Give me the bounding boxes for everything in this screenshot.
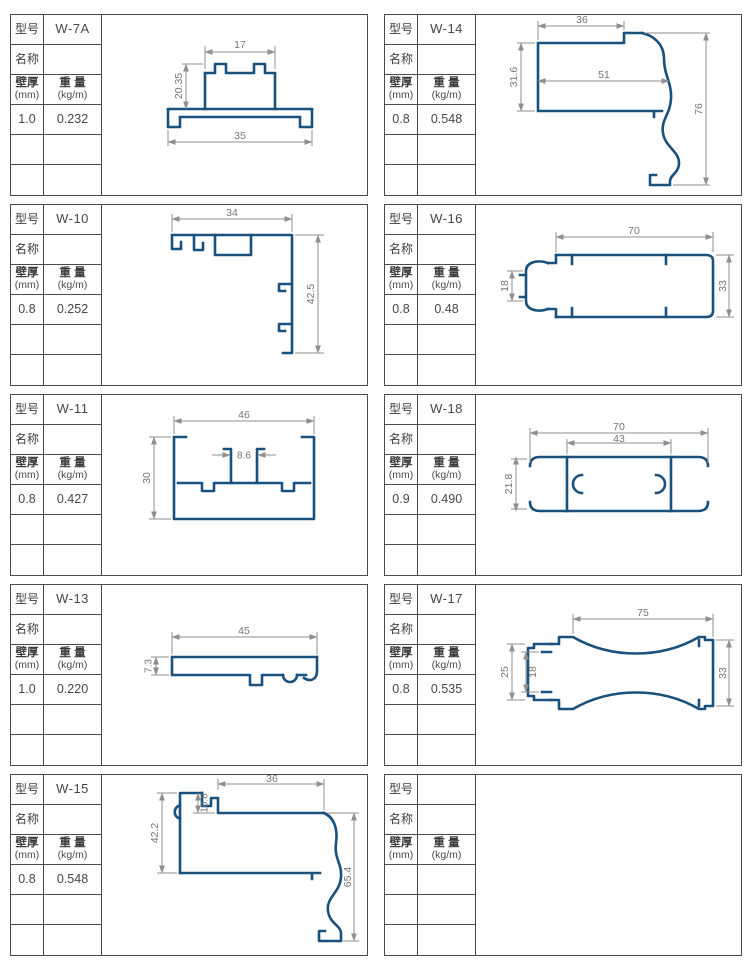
empty-cell [418, 735, 475, 765]
dimension-label: 33 [717, 280, 729, 292]
name-label: 名称 [385, 235, 418, 265]
name-value [418, 425, 475, 455]
model-label: 型号 [385, 395, 418, 425]
empty-cell [385, 705, 418, 735]
profile-drawing-w10: 34 42.5 [102, 205, 366, 385]
profile-outline [520, 261, 548, 310]
weight-header: 重 量(kg/m) [418, 835, 475, 865]
dimension-label: 34 [226, 207, 238, 219]
empty-cell [418, 705, 475, 735]
profile-outline [194, 235, 251, 255]
model-value: W-15 [44, 775, 101, 805]
thickness-header: 壁厚(mm) [385, 265, 418, 295]
profile-outline [283, 675, 297, 682]
thickness-unit: (mm) [15, 470, 40, 482]
profile-outline [319, 813, 341, 941]
profile-card-w7a: 型号 W-7A 名称 壁厚(mm) 重 量(kg/m) 1.0 0.232 17… [10, 14, 368, 196]
drawing-area: 70 43 21.8 [476, 395, 741, 575]
empty-cell [44, 735, 101, 765]
empty-cell [385, 925, 418, 955]
weight-value: 0.548 [418, 105, 475, 135]
empty-cell [11, 705, 44, 735]
weight-value: 0.220 [44, 675, 101, 705]
model-value: W-18 [418, 395, 475, 425]
name-label: 名称 [385, 45, 418, 75]
dimension-label: 42.5 [305, 284, 317, 305]
profile-outline [573, 475, 665, 493]
model-label: 型号 [11, 585, 44, 615]
profile-outline [279, 284, 292, 331]
empty-cell [11, 135, 44, 165]
dimension-label: 36 [266, 775, 278, 785]
profile-outline [202, 793, 324, 813]
spec-table: 型号 W-10 名称 壁厚(mm) 重 量(kg/m) 0.8 0.252 [11, 205, 102, 385]
spec-table: 型号 W-11 名称 壁厚(mm) 重 量(kg/m) 0.8 0.427 [11, 395, 102, 575]
dimension-label: 76 [693, 103, 705, 115]
model-label: 型号 [385, 15, 418, 45]
empty-cell [385, 735, 418, 765]
profile-drawing-w11: 46 8.6 30 [102, 395, 366, 575]
empty-cell [44, 705, 101, 735]
profile-card-w11: 型号 W-11 名称 壁厚(mm) 重 量(kg/m) 0.8 0.427 46 [10, 394, 368, 576]
thickness-value: 0.9 [385, 485, 418, 515]
empty-cell [44, 325, 101, 355]
thickness-header: 壁厚(mm) [385, 75, 418, 105]
name-label: 名称 [11, 615, 44, 645]
thickness-header: 壁厚(mm) [11, 645, 44, 675]
spec-table: 型号 W-18 名称 壁厚(mm) 重 量(kg/m) 0.9 0.490 [385, 395, 476, 575]
model-value: W-17 [418, 585, 475, 615]
model-label: 型号 [385, 205, 418, 235]
dimension-label: 31.6 [508, 67, 520, 88]
dimension-label: 33 [717, 667, 729, 679]
weight-header: 重 量(kg/m) [44, 455, 101, 485]
name-label: 名称 [11, 45, 44, 75]
profile-drawing-w14: 36 51 31.6 76 [476, 15, 740, 195]
weight-unit: (kg/m) [432, 280, 462, 292]
profile-outline [551, 637, 713, 709]
thickness-value: 0.8 [385, 105, 418, 135]
dimension-label: 51 [598, 69, 610, 81]
name-label: 名称 [11, 425, 44, 455]
empty-cell [11, 735, 44, 765]
empty-cell [418, 135, 475, 165]
profile-outline [205, 64, 275, 109]
spec-table: 型号 W-14 名称 壁厚(mm) 重 量(kg/m) 0.8 0.548 [385, 15, 476, 195]
profile-outline [542, 640, 699, 706]
dimension-label: 18 [499, 280, 511, 292]
dimension-label: 75 [637, 607, 649, 619]
spec-table: 型号 W-17 名称 壁厚(mm) 重 量(kg/m) 0.8 0.535 [385, 585, 476, 765]
dimension-label: 65.4 [342, 867, 354, 888]
dimension-label: 21.8 [503, 474, 515, 495]
weight-unit: (kg/m) [58, 470, 88, 482]
profile-outline [567, 457, 671, 511]
name-label: 名称 [11, 235, 44, 265]
dimension-label: 35 [234, 130, 246, 142]
thickness-header: 壁厚(mm) [385, 835, 418, 865]
thickness-unit: (mm) [15, 850, 40, 862]
drawing-area: 36 10.6 42.2 65.4 [102, 775, 367, 955]
catalog-grid: 型号 W-7A 名称 壁厚(mm) 重 量(kg/m) 1.0 0.232 17… [10, 14, 742, 956]
profile-outline [174, 437, 314, 519]
empty-cell [11, 355, 44, 385]
thickness-unit: (mm) [15, 280, 40, 292]
thickness-unit: (mm) [389, 90, 414, 102]
model-label: 型号 [385, 585, 418, 615]
weight-header: 重 量(kg/m) [44, 265, 101, 295]
empty-cell [44, 515, 101, 545]
profile-card-w16: 型号 W-16 名称 壁厚(mm) 重 量(kg/m) 0.8 0.48 70 [384, 204, 742, 386]
dimension-label: 20.35 [173, 73, 185, 99]
empty-cell [385, 545, 418, 575]
profile-drawing-w17: 75 25 18 33 [476, 585, 740, 765]
empty-cell [385, 325, 418, 355]
dimension-label: 30 [141, 472, 153, 484]
model-value: W-10 [44, 205, 101, 235]
model-value [418, 775, 475, 805]
profile-outline [642, 33, 679, 185]
empty-cell [418, 895, 475, 925]
empty-cell [44, 925, 101, 955]
name-value [418, 235, 475, 265]
empty-cell [11, 325, 44, 355]
dimension-label: 17 [234, 39, 246, 51]
profile-outline [572, 255, 666, 317]
drawing-area: 70 18 33 [476, 205, 741, 385]
weight-unit: (kg/m) [432, 660, 462, 672]
empty-cell [418, 545, 475, 575]
thickness-value: 0.8 [11, 485, 44, 515]
thickness-value: 0.8 [11, 295, 44, 325]
profile-card-w13: 型号 W-13 名称 壁厚(mm) 重 量(kg/m) 1.0 0.220 45 [10, 584, 368, 766]
drawing-area [476, 775, 741, 955]
profile-outline [172, 235, 292, 353]
model-label: 型号 [11, 775, 44, 805]
weight-value [418, 865, 475, 895]
spec-table: 型号 W-15 名称 壁厚(mm) 重 量(kg/m) 0.8 0.548 [11, 775, 102, 955]
profile-drawing-w13: 45 7.3 [102, 585, 366, 765]
name-label: 名称 [11, 805, 44, 835]
thickness-header: 壁厚(mm) [11, 75, 44, 105]
dimension-label: 36 [576, 15, 588, 26]
thickness-value: 0.8 [385, 295, 418, 325]
name-value [44, 805, 101, 835]
empty-cell [385, 135, 418, 165]
empty-cell [44, 895, 101, 925]
spec-table: 型号 名称 壁厚(mm) 重 量(kg/m) [385, 775, 476, 955]
empty-cell [11, 165, 44, 195]
weight-value: 0.48 [418, 295, 475, 325]
dimension-label: 18 [527, 666, 539, 678]
weight-value: 0.232 [44, 105, 101, 135]
weight-value: 0.535 [418, 675, 475, 705]
empty-cell [418, 165, 475, 195]
drawing-area: 17 20.35 35 [102, 15, 367, 195]
thickness-unit: (mm) [389, 470, 414, 482]
empty-cell [418, 355, 475, 385]
model-value: W-14 [418, 15, 475, 45]
thickness-unit: (mm) [15, 90, 40, 102]
name-value [418, 45, 475, 75]
drawing-area: 36 51 31.6 76 [476, 15, 741, 195]
weight-header: 重 量(kg/m) [44, 645, 101, 675]
profile-outline [304, 657, 317, 680]
model-label: 型号 [11, 205, 44, 235]
empty-cell [385, 165, 418, 195]
profile-card-w17: 型号 W-17 名称 壁厚(mm) 重 量(kg/m) 0.8 0.535 75 [384, 584, 742, 766]
empty-cell [11, 545, 44, 575]
spec-table: 型号 W-13 名称 壁厚(mm) 重 量(kg/m) 1.0 0.220 [11, 585, 102, 765]
empty-cell [11, 925, 44, 955]
weight-header: 重 量(kg/m) [418, 645, 475, 675]
weight-unit: (kg/m) [58, 280, 88, 292]
empty-cell [385, 355, 418, 385]
name-value [44, 425, 101, 455]
dimension-label: 7.3 [144, 659, 155, 673]
weight-unit: (kg/m) [58, 90, 88, 102]
profile-card-w15: 型号 W-15 名称 壁厚(mm) 重 量(kg/m) 0.8 0.548 36 [10, 774, 368, 956]
spec-table: 型号 W-16 名称 壁厚(mm) 重 量(kg/m) 0.8 0.48 [385, 205, 476, 385]
profile-card-empty: 型号 名称 壁厚(mm) 重 量(kg/m) [384, 774, 742, 956]
name-value [44, 615, 101, 645]
profile-outline [168, 109, 312, 127]
weight-value: 0.490 [418, 485, 475, 515]
weight-header: 重 量(kg/m) [44, 75, 101, 105]
thickness-header: 壁厚(mm) [11, 265, 44, 295]
dimension-label: 70 [613, 421, 625, 433]
dimension-label: 42.2 [149, 823, 161, 844]
empty-cell [11, 515, 44, 545]
empty-cell [11, 895, 44, 925]
empty-cell [385, 515, 418, 545]
drawing-area: 45 7.3 [102, 585, 367, 765]
model-value: W-13 [44, 585, 101, 615]
model-label: 型号 [11, 395, 44, 425]
profile-card-w14: 型号 W-14 名称 壁厚(mm) 重 量(kg/m) 0.8 0.548 36… [384, 14, 742, 196]
thickness-unit: (mm) [15, 660, 40, 672]
thickness-header: 壁厚(mm) [385, 645, 418, 675]
thickness-header: 壁厚(mm) [11, 835, 44, 865]
profile-drawing-w15: 36 10.6 42.2 65.4 [102, 775, 366, 955]
thickness-value: 1.0 [11, 675, 44, 705]
weight-header: 重 量(kg/m) [418, 75, 475, 105]
weight-value: 0.427 [44, 485, 101, 515]
model-value: W-16 [418, 205, 475, 235]
name-label: 名称 [385, 805, 418, 835]
dimension-label: 43 [613, 433, 625, 445]
profile-outline [180, 873, 320, 879]
profile-drawing-w7a: 17 20.35 35 [102, 15, 366, 195]
dimension-label: 25 [499, 666, 511, 678]
thickness-value: 1.0 [11, 105, 44, 135]
dimension-label: 45 [238, 625, 250, 637]
profile-outline [530, 502, 708, 511]
empty-cell [44, 165, 101, 195]
thickness-unit: (mm) [389, 660, 414, 672]
profile-outline [178, 483, 310, 491]
weight-header: 重 量(kg/m) [418, 265, 475, 295]
empty-cell [44, 545, 101, 575]
model-label: 型号 [385, 775, 418, 805]
profile-drawing-w18: 70 43 21.8 [476, 395, 740, 575]
model-value: W-11 [44, 395, 101, 425]
empty-cell [44, 355, 101, 385]
profile-outline [530, 457, 708, 466]
thickness-header: 壁厚(mm) [385, 455, 418, 485]
weight-value: 0.548 [44, 865, 101, 895]
name-label: 名称 [385, 425, 418, 455]
profile-card-w10: 型号 W-10 名称 壁厚(mm) 重 量(kg/m) 0.8 0.252 34 [10, 204, 368, 386]
name-value [44, 235, 101, 265]
name-value [418, 615, 475, 645]
weight-unit: (kg/m) [432, 850, 462, 862]
empty-cell [418, 325, 475, 355]
name-value [418, 805, 475, 835]
model-value: W-7A [44, 15, 101, 45]
weight-header: 重 量(kg/m) [418, 455, 475, 485]
name-value [44, 45, 101, 75]
profile-outline [548, 255, 556, 317]
drawing-area: 34 42.5 [102, 205, 367, 385]
thickness-unit: (mm) [389, 280, 414, 292]
empty-cell [418, 515, 475, 545]
weight-unit: (kg/m) [58, 660, 88, 672]
profile-drawing-w16: 70 18 33 [476, 205, 740, 385]
empty-cell [385, 895, 418, 925]
weight-unit: (kg/m) [432, 470, 462, 482]
thickness-header: 壁厚(mm) [11, 455, 44, 485]
drawing-area: 46 8.6 30 [102, 395, 367, 575]
empty-cell [418, 925, 475, 955]
drawing-area: 75 25 18 33 [476, 585, 741, 765]
profile-outline [556, 255, 713, 317]
spec-table: 型号 W-7A 名称 壁厚(mm) 重 量(kg/m) 1.0 0.232 [11, 15, 102, 195]
dimension-label: 8.6 [237, 451, 251, 462]
dimension-label: 10.6 [200, 793, 211, 813]
weight-header: 重 量(kg/m) [44, 835, 101, 865]
thickness-value [385, 865, 418, 895]
thickness-unit: (mm) [389, 850, 414, 862]
empty-cell [44, 135, 101, 165]
thickness-value: 0.8 [11, 865, 44, 895]
name-label: 名称 [385, 615, 418, 645]
thickness-value: 0.8 [385, 675, 418, 705]
dimension-label: 46 [238, 409, 250, 421]
weight-unit: (kg/m) [432, 90, 462, 102]
profile-card-w18: 型号 W-18 名称 壁厚(mm) 重 量(kg/m) 0.9 0.490 70 [384, 394, 742, 576]
weight-unit: (kg/m) [58, 850, 88, 862]
dimension-label: 70 [628, 225, 640, 237]
model-label: 型号 [11, 15, 44, 45]
weight-value: 0.252 [44, 295, 101, 325]
